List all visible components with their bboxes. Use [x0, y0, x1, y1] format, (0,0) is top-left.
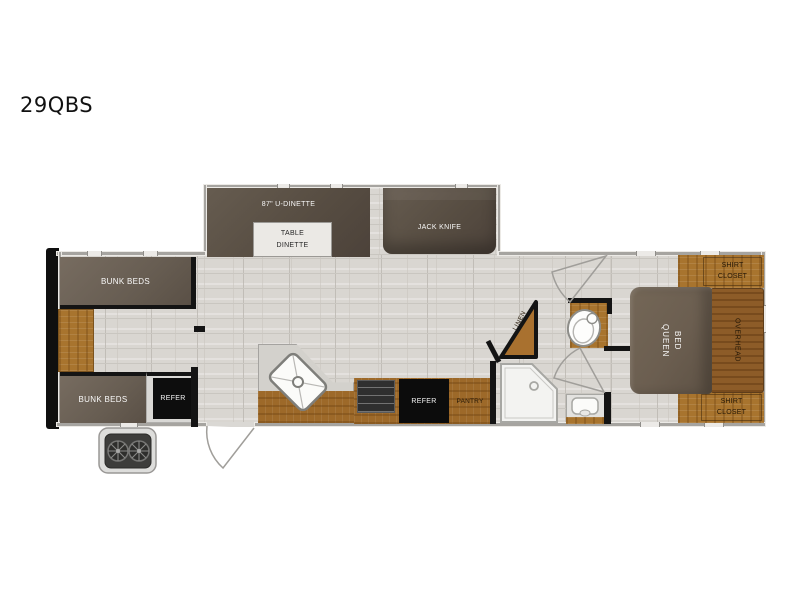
- entry-door-swing: [207, 426, 254, 468]
- bedroom-door-swing: [552, 256, 606, 302]
- toilet: [565, 307, 604, 349]
- linen-closet: [501, 302, 536, 357]
- bathroom-door-swing: [554, 348, 604, 392]
- floorplan-canvas: 29QBS BUNK BEDS BUNK BEDS REFER 87" U-DI…: [0, 0, 800, 600]
- outdoor-griddle: [99, 428, 156, 473]
- fixtures-overlay: [0, 0, 800, 600]
- shower: [501, 364, 557, 422]
- kitchen-sink: [268, 352, 329, 413]
- bathroom-sink: [572, 398, 598, 416]
- wall-angled: [488, 341, 499, 362]
